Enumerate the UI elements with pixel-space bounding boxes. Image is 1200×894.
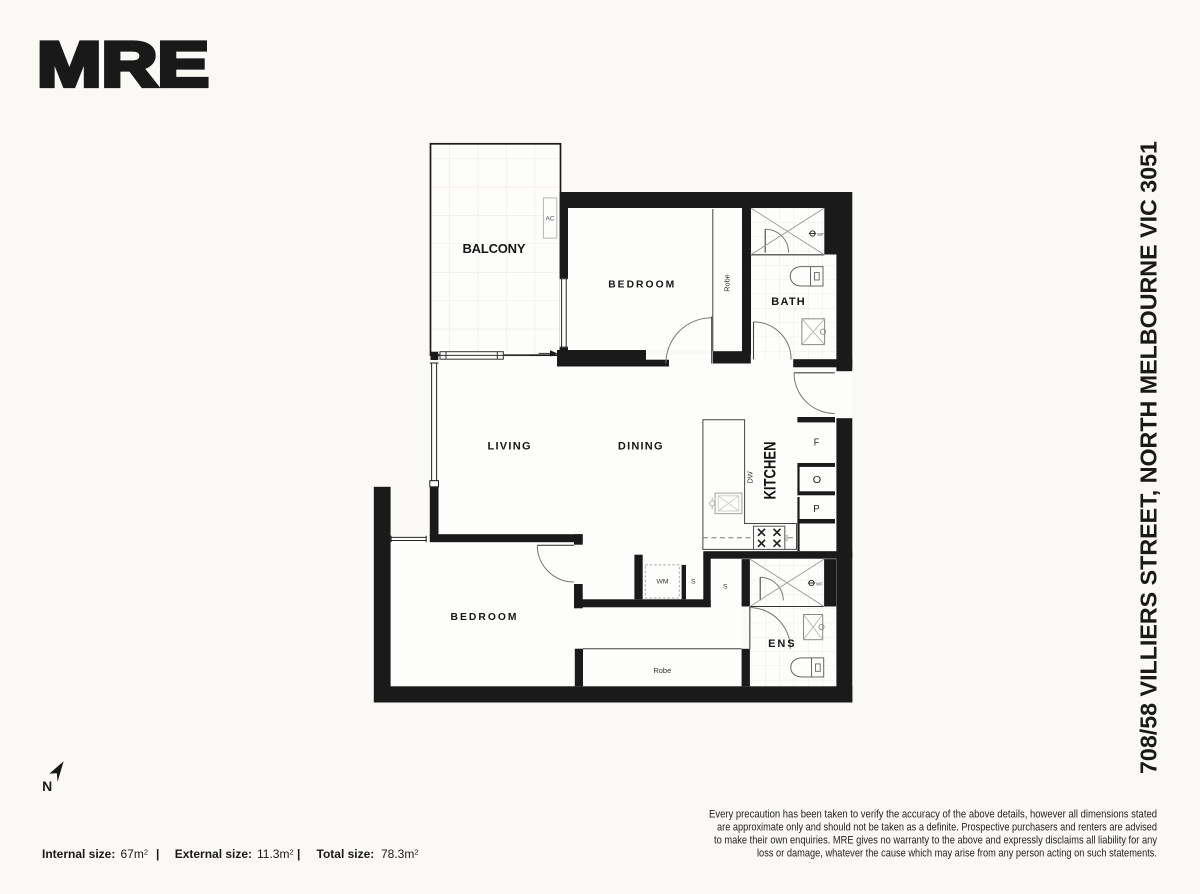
svg-text:KITCHEN: KITCHEN [761,442,780,500]
svg-text:Robe: Robe [653,666,671,675]
svg-text:S: S [691,579,696,586]
svg-text:WF: WF [816,582,823,587]
svg-text:LIVING: LIVING [488,441,531,453]
svg-text:Internal size:67m2|External si: Internal size:67m2|External size:11.3m2|… [42,847,419,861]
svg-text:are approximate only and shoul: are approximate only and should not be t… [717,822,1157,834]
svg-text:ENS: ENS [768,638,795,650]
svg-text:Robe: Robe [723,274,732,291]
svg-text:WM: WM [656,579,668,586]
svg-text:to make their own enquiries. M: to make their own enquiries. MRE gives n… [714,835,1158,847]
svg-text:loss or damage, whatever the c: loss or damage, whatever the cause which… [757,848,1157,860]
svg-text:AC: AC [545,216,554,223]
svg-text:P: P [813,503,820,515]
svg-text:O: O [813,474,821,486]
svg-text:S: S [723,584,728,591]
svg-text:BALCONY: BALCONY [463,241,526,256]
svg-text:N: N [42,778,52,794]
svg-text:WF: WF [817,232,824,237]
svg-text:F: F [814,437,820,449]
svg-text:BATH: BATH [771,296,805,308]
svg-text:600: 600 [784,534,789,541]
svg-text:MRE: MRE [37,30,209,100]
svg-text:DINING: DINING [618,441,663,453]
svg-text:Every precaution has been take: Every precaution has been taken to verif… [709,809,1157,821]
svg-text:DW: DW [746,471,755,483]
svg-text:708/58 VILLIERS STREET, NORTH: 708/58 VILLIERS STREET, NORTH MELBOURNE … [1136,141,1162,774]
